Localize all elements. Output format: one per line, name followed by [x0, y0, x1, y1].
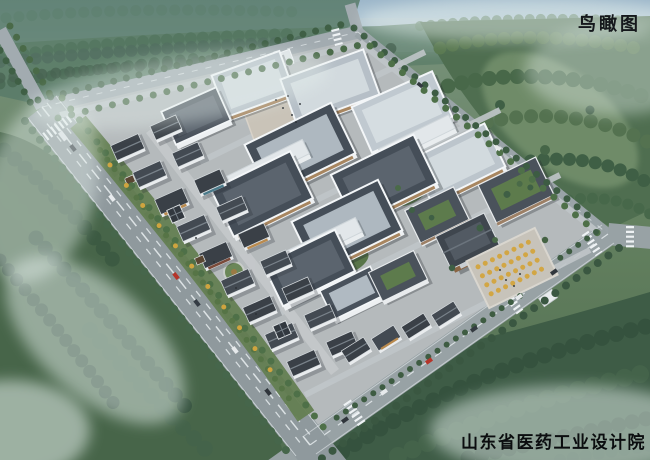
aerial-rendering-canvas	[0, 0, 650, 460]
design-institute-credit-label: 山东省医药工业设计院	[461, 428, 646, 453]
view-title-label: 鸟瞰图	[578, 10, 641, 36]
aerial-rendering: 鸟瞰图 山东省医药工业设计院	[0, 0, 650, 460]
